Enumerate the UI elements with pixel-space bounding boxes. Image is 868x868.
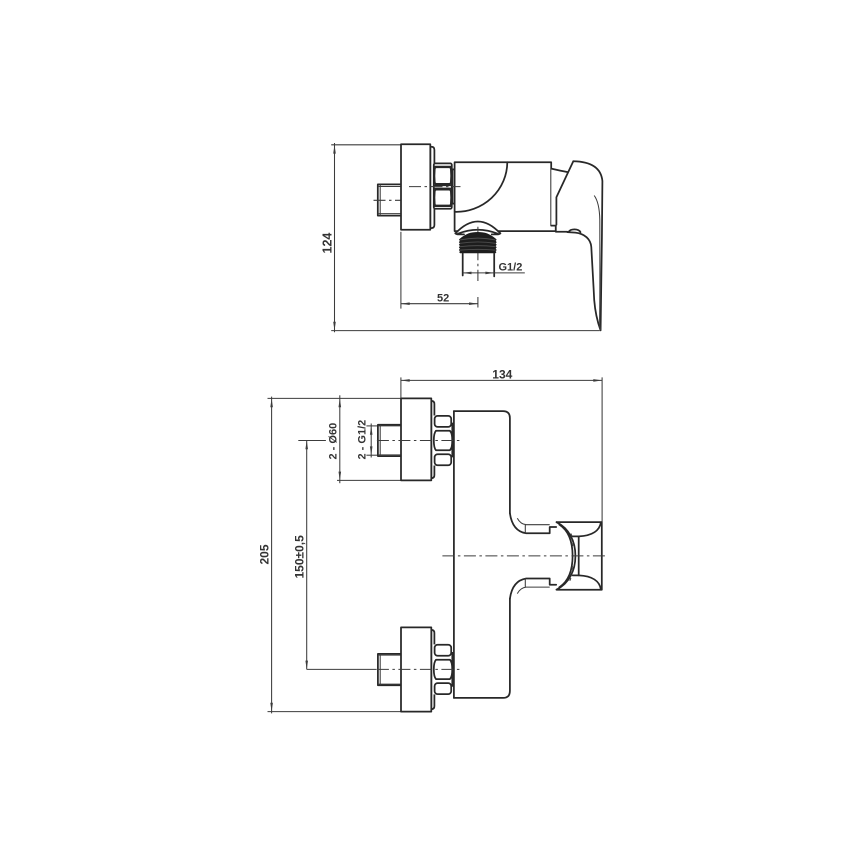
svg-text:124: 124: [321, 233, 335, 254]
svg-text:52: 52: [437, 292, 449, 304]
svg-text:2 - G1/2: 2 - G1/2: [357, 420, 369, 460]
svg-text:150±0,5: 150±0,5: [293, 535, 307, 579]
svg-text:2 - Ø60: 2 - Ø60: [328, 423, 340, 460]
svg-text:G1/2: G1/2: [499, 261, 523, 273]
svg-text:205: 205: [258, 544, 272, 564]
svg-text:134: 134: [492, 367, 512, 381]
